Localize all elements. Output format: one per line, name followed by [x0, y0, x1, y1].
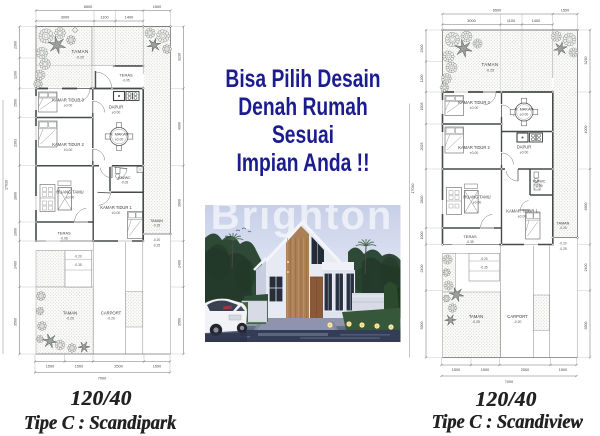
svg-text:3500: 3500	[177, 318, 181, 326]
svg-text:-0.05: -0.05	[121, 181, 128, 185]
svg-text:1500: 1500	[14, 99, 18, 107]
svg-text:1500: 1500	[481, 368, 489, 372]
svg-text:TERAS: TERAS	[119, 73, 133, 78]
svg-text:±0.00: ±0.00	[112, 111, 121, 115]
svg-text:TERAS: TERAS	[463, 234, 477, 239]
svg-text:1500: 1500	[153, 5, 161, 9]
svg-text:±0.00: ±0.00	[66, 196, 75, 200]
svg-text:RUANG TAMU: RUANG TAMU	[463, 195, 490, 200]
svg-text:2023: 2023	[420, 143, 424, 151]
svg-text:1200: 1200	[14, 71, 18, 79]
svg-text:-0.20: -0.20	[76, 56, 84, 60]
svg-text:1500: 1500	[153, 365, 161, 369]
svg-text:1100: 1100	[100, 16, 108, 20]
svg-text:-0.05: -0.05	[535, 184, 542, 188]
svg-text:TAMAN: TAMAN	[150, 219, 163, 223]
svg-text:±0.00: ±0.00	[520, 113, 529, 117]
svg-text:-0.20: -0.20	[153, 238, 160, 242]
svg-text:2363: 2363	[14, 139, 18, 147]
svg-text:1100: 1100	[507, 19, 515, 23]
svg-text:1000: 1000	[14, 228, 18, 236]
svg-text:4000: 4000	[177, 122, 181, 130]
svg-text:1500: 1500	[452, 368, 460, 372]
svg-text:1500: 1500	[75, 365, 83, 369]
svg-text:DAPUR: DAPUR	[109, 105, 123, 110]
svg-text:2300: 2300	[14, 41, 18, 49]
svg-text:2400: 2400	[14, 261, 18, 269]
svg-text:±0.00: ±0.00	[473, 201, 482, 205]
svg-text:2400: 2400	[420, 265, 424, 273]
svg-text:TAMAN: TAMAN	[469, 314, 483, 319]
svg-text:±0.00: ±0.00	[112, 211, 121, 215]
svg-text:-0.08: -0.08	[60, 237, 68, 241]
svg-text:2400: 2400	[177, 260, 181, 268]
svg-text:±0.00: ±0.00	[470, 106, 479, 110]
svg-text:KAMAR TIDUR 2: KAMAR TIDUR 2	[52, 142, 84, 147]
svg-text:1200: 1200	[420, 75, 424, 83]
svg-text:-0.20: -0.20	[514, 320, 522, 324]
svg-text:KAMAR TIDUR 3: KAMAR TIDUR 3	[52, 98, 84, 103]
svg-text:-0.25: -0.25	[559, 247, 566, 251]
svg-text:±0.00: ±0.00	[470, 151, 479, 155]
svg-text:±0.00: ±0.00	[518, 215, 527, 219]
svg-text:2300: 2300	[420, 45, 424, 53]
svg-text:R. MAKAN: R. MAKAN	[110, 132, 129, 137]
svg-text:-0.20: -0.20	[559, 242, 566, 246]
svg-text:-0.25: -0.25	[559, 226, 566, 230]
svg-text:±0.00: ±0.00	[64, 148, 73, 152]
svg-text:±0.00: ±0.00	[64, 104, 73, 108]
svg-text:KAMAR TIDUR 1: KAMAR TIDUR 1	[100, 205, 132, 210]
svg-text:-0.35: -0.35	[466, 240, 474, 244]
svg-text:-0.25: -0.25	[472, 320, 480, 324]
svg-text:1503: 1503	[420, 103, 424, 111]
svg-text:3230: 3230	[584, 57, 588, 65]
svg-text:TAMAN: TAMAN	[557, 222, 570, 226]
svg-text:CARPORT: CARPORT	[101, 311, 122, 316]
svg-text:TAMAN: TAMAN	[481, 62, 498, 67]
svg-text:KAMAR TIDUR 2: KAMAR TIDUR 2	[458, 145, 490, 150]
svg-text:3500: 3500	[584, 322, 588, 330]
svg-text:-0.25: -0.25	[66, 317, 74, 321]
svg-text:-0.20: -0.20	[480, 257, 487, 261]
svg-text:1400: 1400	[532, 19, 540, 23]
svg-text:KAMAR TIDUR 3: KAMAR TIDUR 3	[458, 100, 490, 105]
svg-text:TAMAN: TAMAN	[63, 311, 77, 316]
svg-text:±0.00: ±0.00	[115, 138, 124, 142]
svg-text:TAMAN: TAMAN	[71, 49, 88, 54]
svg-text:R. MAKAN: R. MAKAN	[515, 107, 534, 112]
svg-text:-0.25: -0.25	[153, 244, 160, 248]
svg-text:TERAS: TERAS	[57, 231, 71, 236]
svg-text:±0.00: ±0.00	[520, 151, 529, 155]
svg-text:3000: 3000	[467, 19, 475, 23]
svg-text:DAPUR: DAPUR	[517, 145, 531, 150]
svg-text:3500: 3500	[420, 322, 424, 330]
svg-text:-0.35: -0.35	[480, 266, 487, 270]
svg-text:17030: 17030	[5, 180, 9, 190]
svg-text:-0.20: -0.20	[107, 317, 115, 321]
svg-text:-0.25: -0.25	[153, 224, 160, 228]
svg-text:2500: 2500	[114, 365, 122, 369]
svg-text:KM/WC: KM/WC	[118, 176, 131, 180]
svg-text:2400: 2400	[584, 264, 588, 272]
svg-text:1500: 1500	[46, 365, 54, 369]
svg-text:3230: 3230	[177, 53, 181, 61]
svg-text:KAMAR TIDUR 1: KAMAR TIDUR 1	[506, 209, 538, 214]
svg-text:4000: 4000	[584, 126, 588, 134]
svg-text:1500: 1500	[559, 368, 567, 372]
svg-text:RUANG TAMU: RUANG TAMU	[56, 190, 83, 195]
svg-text:1400: 1400	[125, 16, 133, 20]
svg-text:3500: 3500	[14, 318, 18, 326]
svg-text:2800: 2800	[14, 192, 18, 200]
svg-text:CARPORT: CARPORT	[507, 314, 528, 319]
svg-text:-0.05: -0.05	[122, 79, 130, 83]
svg-text:6500: 6500	[84, 5, 92, 9]
svg-text:17030: 17030	[411, 184, 415, 194]
svg-text:3000: 3000	[61, 16, 69, 20]
svg-text:2830: 2830	[420, 196, 424, 204]
svg-text:-0.25: -0.25	[486, 69, 494, 73]
svg-text:-0.20: -0.20	[74, 254, 81, 258]
svg-text:3900: 3900	[584, 203, 588, 211]
svg-text:3900: 3900	[177, 199, 181, 207]
svg-text:-0.35: -0.35	[74, 263, 81, 267]
svg-text:KM/WC: KM/WC	[533, 180, 546, 184]
svg-text:6500: 6500	[493, 9, 501, 13]
svg-text:2500: 2500	[521, 368, 529, 372]
svg-text:1500: 1500	[561, 9, 569, 13]
svg-text:1000: 1000	[420, 232, 424, 240]
svg-text:7000: 7000	[98, 376, 106, 380]
svg-text:7000: 7000	[505, 380, 513, 384]
